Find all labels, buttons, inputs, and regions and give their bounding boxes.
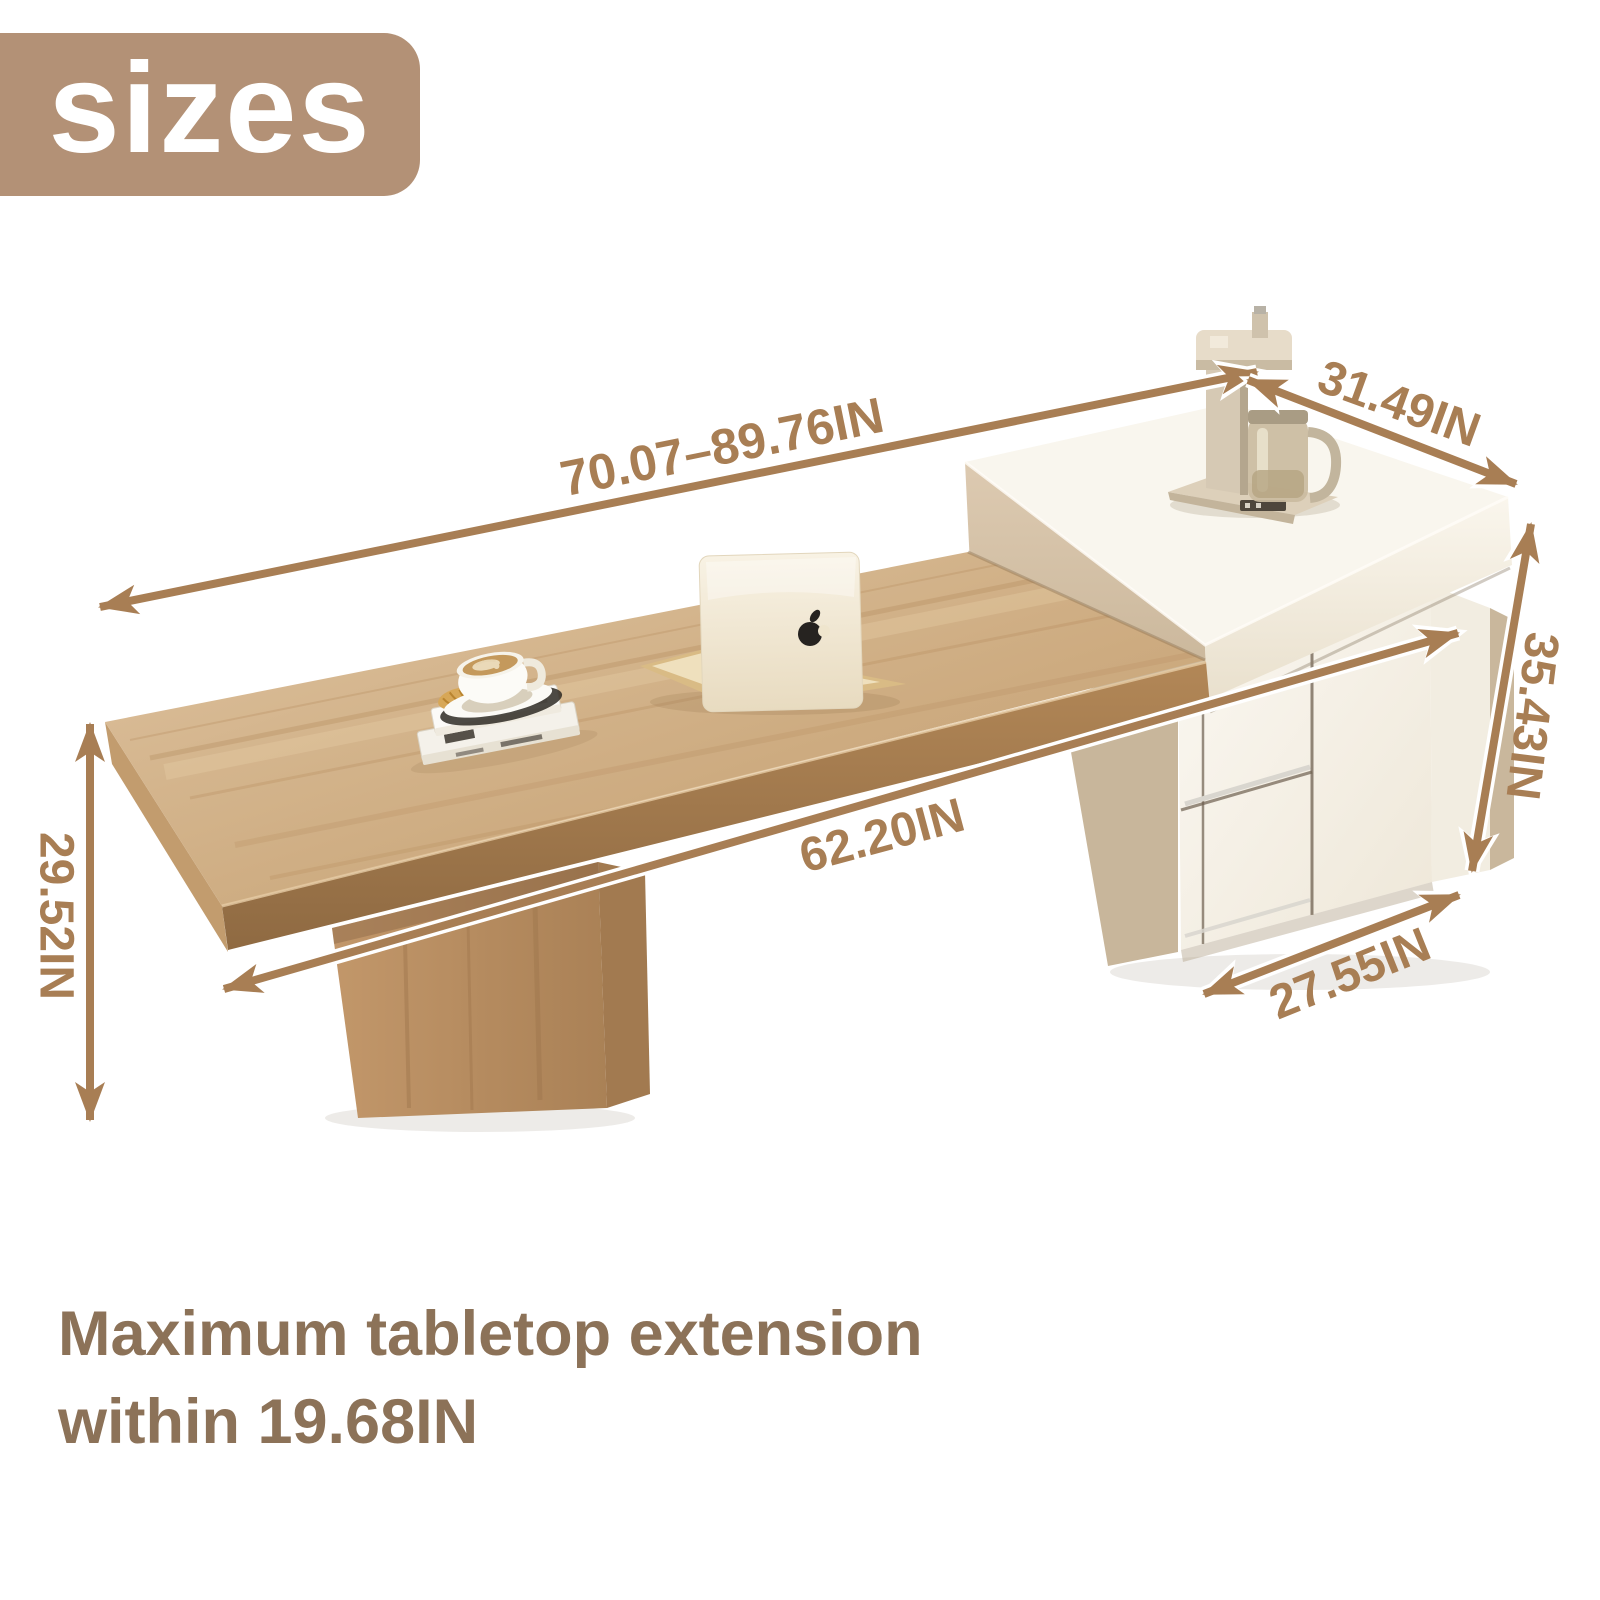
size-diagram: sizes — [0, 0, 1600, 1600]
caption-line1: Maximum tabletop extension — [58, 1290, 923, 1378]
dimension-label-left-height: 29.52IN — [29, 832, 84, 1000]
caption-line2: within 19.68IN — [58, 1378, 923, 1466]
caption: Maximum tabletop extension within 19.68I… — [58, 1290, 923, 1466]
